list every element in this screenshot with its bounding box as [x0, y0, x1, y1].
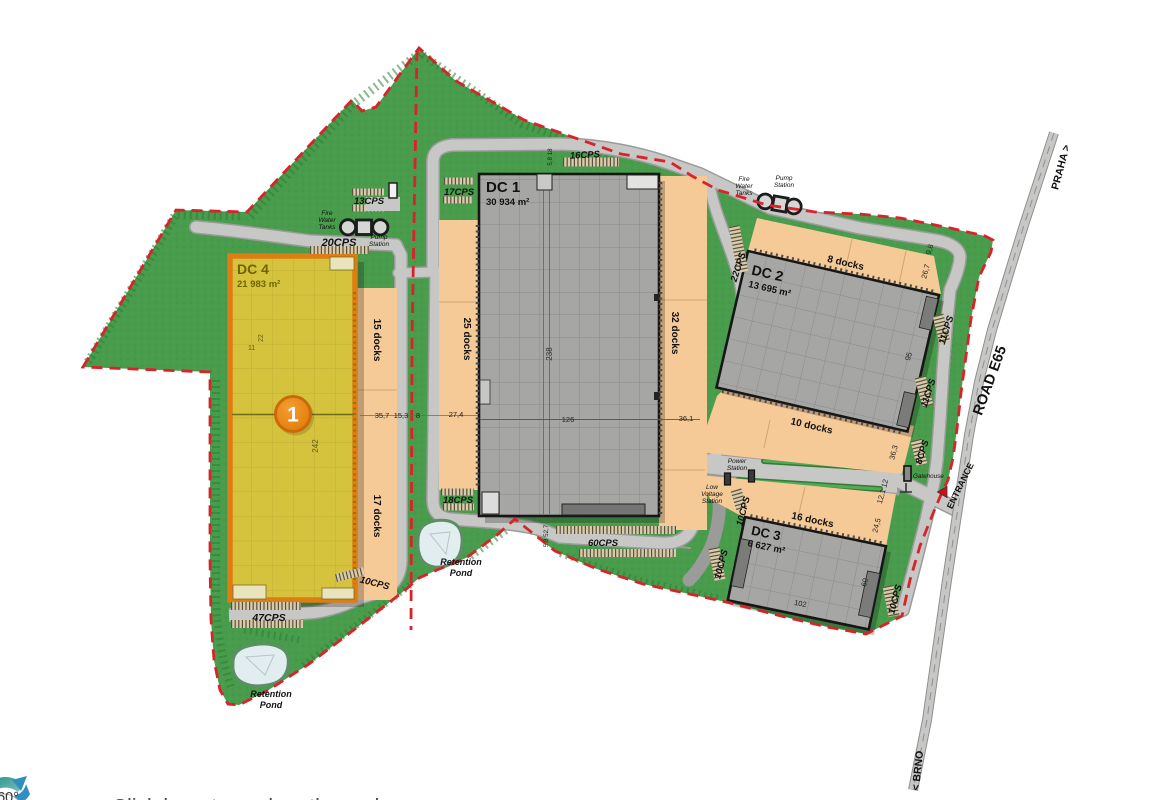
svg-text:Voltage: Voltage	[701, 491, 723, 498]
svg-text:Pond: Pond	[260, 700, 283, 710]
svg-text:22: 22	[258, 334, 265, 342]
svg-text:238: 238	[545, 347, 554, 361]
svg-text:Gatehouse: Gatehouse	[913, 473, 944, 480]
svg-text:16CPS: 16CPS	[570, 149, 601, 162]
svg-text:60CPS: 60CPS	[588, 538, 619, 549]
svg-text:126: 126	[562, 415, 575, 424]
svg-text:5,8 18: 5,8 18	[547, 148, 554, 166]
svg-text:Water: Water	[735, 183, 753, 190]
svg-text:Tanks: Tanks	[318, 224, 336, 231]
svg-text:Retention: Retention	[250, 689, 292, 699]
svg-text:17CPS: 17CPS	[444, 187, 475, 198]
svg-text:Station: Station	[369, 241, 390, 248]
svg-text:Tanks: Tanks	[735, 190, 753, 197]
svg-text:13CPS: 13CPS	[354, 196, 385, 207]
svg-text:DC 1: DC 1	[486, 179, 520, 196]
svg-text:Station: Station	[727, 465, 748, 472]
svg-text:15,3: 15,3	[394, 411, 409, 420]
svg-text:Station: Station	[774, 182, 795, 189]
svg-text:25 docks: 25 docks	[461, 318, 472, 361]
svg-text:27,4: 27,4	[449, 410, 464, 419]
svg-text:Pump: Pump	[776, 175, 793, 182]
svg-text:15 docks: 15 docks	[371, 319, 382, 362]
svg-text:DC 4: DC 4	[237, 261, 269, 277]
svg-text:21 983 m²: 21 983 m²	[237, 279, 280, 290]
svg-text:5,8 52,7: 5,8 52,7	[543, 524, 550, 547]
svg-text:36,1: 36,1	[679, 414, 694, 423]
svg-text:Fire: Fire	[321, 210, 333, 217]
svg-text:Retention: Retention	[440, 557, 482, 567]
svg-text:Pump: Pump	[371, 234, 388, 241]
svg-text:360°: 360°	[0, 790, 19, 800]
svg-text:30 934 m²: 30 934 m²	[486, 197, 529, 208]
svg-text:Power: Power	[728, 458, 747, 465]
svg-text:18CPS: 18CPS	[443, 495, 474, 506]
svg-text:11: 11	[248, 345, 255, 352]
svg-text:8: 8	[416, 411, 420, 420]
svg-text:Pond: Pond	[450, 568, 473, 578]
svg-text:Station: Station	[702, 498, 723, 505]
svg-text:Click here to explore the park: Click here to explore the park	[112, 796, 386, 800]
svg-text:20CPS: 20CPS	[321, 237, 358, 249]
svg-text:17 docks: 17 docks	[371, 495, 382, 538]
svg-text:242: 242	[311, 439, 320, 453]
svg-text:Low: Low	[706, 484, 719, 491]
svg-text:35,7: 35,7	[375, 411, 390, 420]
svg-text:Water: Water	[318, 217, 336, 224]
svg-text:Fire: Fire	[738, 176, 750, 183]
svg-text:32 docks: 32 docks	[669, 312, 680, 355]
svg-text:1: 1	[287, 404, 299, 427]
svg-text:47CPS: 47CPS	[251, 612, 285, 624]
